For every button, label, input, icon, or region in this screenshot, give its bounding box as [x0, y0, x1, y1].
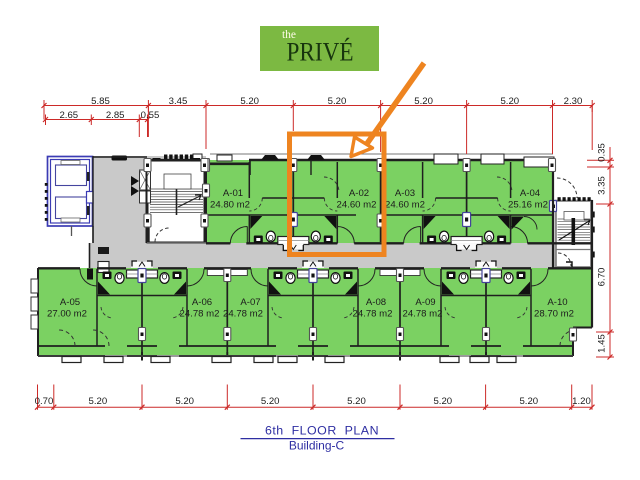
svg-text:PRIVÉ: PRIVÉ: [287, 37, 354, 67]
svg-text:A-07: A-07: [240, 297, 260, 308]
svg-text:5.20: 5.20: [89, 396, 108, 407]
svg-text:6th FLOOR PLAN: 6th FLOOR PLAN: [265, 424, 379, 438]
svg-text:5.20: 5.20: [519, 396, 538, 407]
svg-text:A-09: A-09: [415, 297, 435, 308]
svg-text:A-04: A-04: [520, 188, 541, 199]
svg-text:3.45: 3.45: [169, 96, 188, 107]
svg-text:5.20: 5.20: [500, 96, 519, 107]
svg-text:24.78 m2: 24.78 m2: [223, 309, 263, 320]
svg-text:5.20: 5.20: [261, 396, 280, 407]
svg-text:24.60 m2: 24.60 m2: [336, 200, 376, 211]
svg-text:A-01: A-01: [223, 188, 243, 199]
svg-text:6.70: 6.70: [597, 268, 608, 287]
svg-text:5.85: 5.85: [91, 96, 110, 107]
svg-text:0.55: 0.55: [141, 110, 160, 121]
svg-text:A-02: A-02: [349, 188, 369, 199]
svg-text:1.20: 1.20: [572, 396, 591, 407]
svg-text:A-06: A-06: [192, 297, 212, 308]
svg-text:0.35: 0.35: [597, 143, 608, 162]
svg-text:2.30: 2.30: [564, 96, 583, 107]
svg-text:24.78 m2: 24.78 m2: [402, 309, 442, 320]
svg-text:A-08: A-08: [366, 297, 386, 308]
svg-text:A-10: A-10: [547, 297, 567, 308]
svg-text:25.16 m2: 25.16 m2: [508, 200, 548, 211]
svg-text:5.20: 5.20: [414, 96, 433, 107]
svg-text:24.78 m2: 24.78 m2: [352, 309, 392, 320]
svg-text:A-03: A-03: [395, 188, 415, 199]
svg-text:28.70 m2: 28.70 m2: [534, 309, 574, 320]
svg-text:2.65: 2.65: [59, 110, 78, 121]
svg-text:1.45: 1.45: [597, 334, 608, 353]
svg-text:24.80 m2: 24.80 m2: [210, 200, 250, 211]
svg-text:24.60 m2: 24.60 m2: [385, 200, 425, 211]
svg-text:2.85: 2.85: [106, 110, 125, 121]
svg-text:Building-C: Building-C: [289, 439, 345, 453]
svg-text:27.00 m2: 27.00 m2: [47, 309, 87, 320]
svg-text:5.20: 5.20: [240, 96, 259, 107]
svg-text:5.20: 5.20: [433, 396, 452, 407]
svg-text:5.20: 5.20: [175, 396, 194, 407]
svg-text:5.20: 5.20: [347, 396, 366, 407]
svg-text:A-05: A-05: [60, 297, 80, 308]
svg-text:5.20: 5.20: [328, 96, 347, 107]
svg-text:24.78 m2: 24.78 m2: [179, 309, 219, 320]
svg-text:3.35: 3.35: [597, 176, 608, 195]
svg-text:0.70: 0.70: [35, 396, 54, 407]
